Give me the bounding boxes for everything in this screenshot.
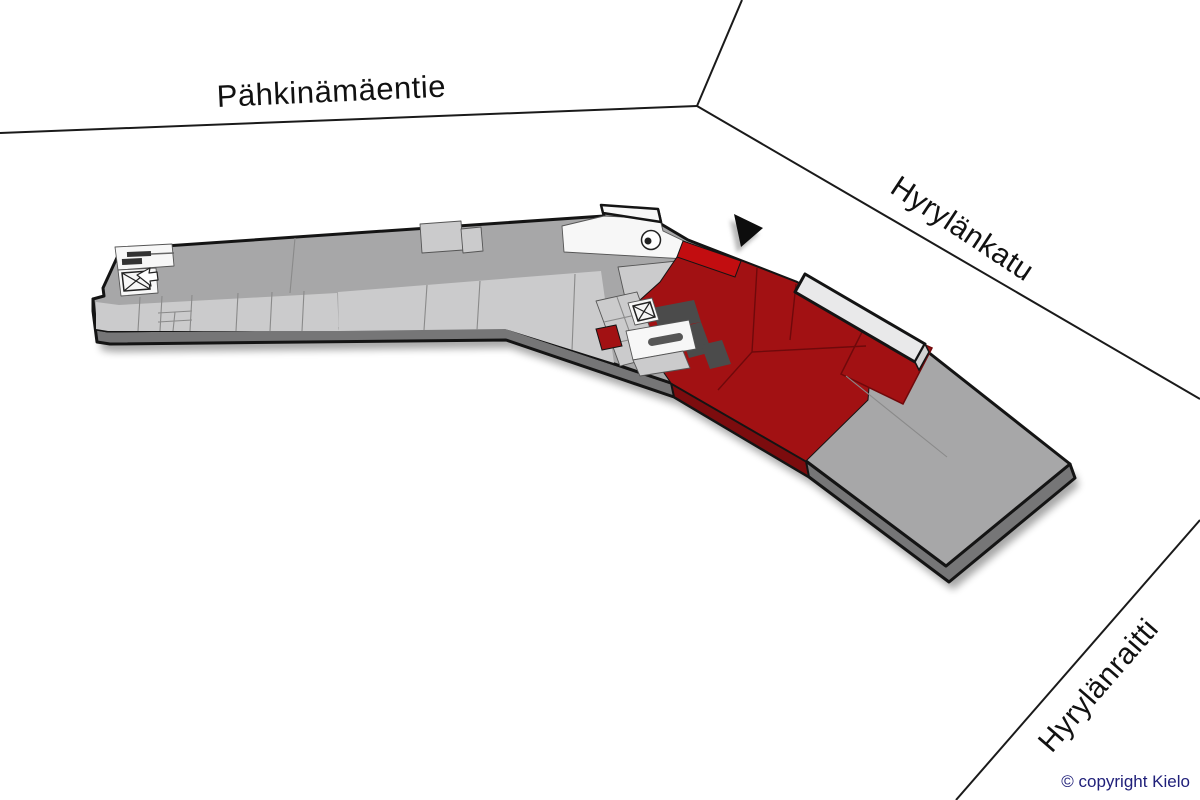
building-roof — [93, 206, 1070, 566]
street-line-top — [0, 106, 697, 133]
room-patch-back-1 — [420, 221, 463, 253]
copyright-notice: © copyright Kielo — [1061, 772, 1190, 792]
room-white-stairs-tip — [115, 244, 174, 270]
floorplan-map — [0, 0, 1200, 800]
stairs-bar-bottom — [122, 261, 142, 262]
room-white-north — [562, 216, 688, 259]
street-line-upper — [697, 0, 742, 106]
door-swing-dot — [645, 238, 652, 245]
room-patch-back-2 — [461, 227, 483, 253]
elevator-x-icon-junction — [633, 302, 655, 321]
stairs-rail-line — [151, 253, 174, 254]
door-swing-icon — [642, 231, 661, 250]
stair-bar-icon — [652, 337, 679, 342]
street-line-bottom-right — [956, 520, 1200, 800]
street-lines — [0, 0, 1200, 800]
stairs-bar-top — [127, 254, 151, 255]
